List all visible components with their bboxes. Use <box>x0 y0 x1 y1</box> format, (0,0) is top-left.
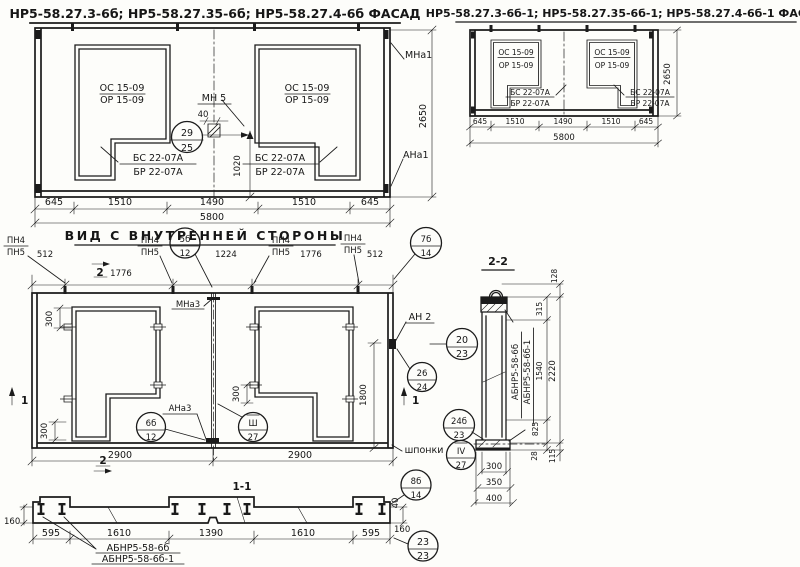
anchor-an2: АН 2 <box>409 312 432 323</box>
dim-1800: 1800 <box>359 384 369 406</box>
niche-mark-br: БР 22-07А <box>511 99 551 108</box>
callout-bottom: 23 <box>417 551 429 562</box>
dim-1510: 1510 <box>292 197 316 208</box>
pn4-label: ПН4 <box>7 236 25 246</box>
callout-top: 5б <box>180 235 191 245</box>
dim-1610: 1610 <box>291 528 315 539</box>
facade-left-panel-outline <box>35 28 390 197</box>
pn5-label: ПН5 <box>141 248 159 258</box>
dim-40: 40 <box>391 498 401 509</box>
section-2-2-body <box>476 297 510 450</box>
callout-bottom: 23 <box>456 349 468 360</box>
section-1-1-outline <box>33 497 390 523</box>
section-marker-1: 1 <box>412 395 419 407</box>
dim-350: 350 <box>486 478 502 488</box>
dim-300: 300 <box>232 386 242 402</box>
embed-size-40: 40 <box>198 110 209 120</box>
callout-bottom: 27 <box>248 433 259 443</box>
dim-2900: 2900 <box>108 450 132 461</box>
section-marker-2: 2 <box>99 455 106 467</box>
window-mark-or: ОР 15-09 <box>100 95 144 106</box>
inner-view-windows <box>72 307 353 441</box>
dim-5800: 5800 <box>200 212 224 223</box>
callout-circles: 29 25 5б 12 7б 14 6б 12 Ш 27 20 23 26 24… <box>137 122 478 563</box>
facade-right-dim-lines <box>467 27 682 147</box>
section-1-1-break-lines <box>108 497 307 523</box>
pn4-label: ПН4 <box>272 236 290 246</box>
dim-160: 160 <box>394 525 410 535</box>
section-2-2-black-marks <box>476 297 510 450</box>
block-label-vertical: АБНР5-58-6б-1 <box>523 340 533 405</box>
dim-1224: 1224 <box>215 250 237 260</box>
section-1-1-ibeam-glyphs <box>38 503 386 515</box>
dim-1020: 1020 <box>233 155 243 177</box>
dim-300: 300 <box>486 462 502 472</box>
niche-mark-bs: БС 22-07А <box>255 153 306 164</box>
dim-1540: 1540 <box>535 361 544 380</box>
facade-right-title: НР5-58.27.3-6б-1; НР5-58.27.35-6б-1; НР5… <box>426 7 800 20</box>
dim-1776: 1776 <box>300 250 322 260</box>
dim-512: 512 <box>37 250 53 260</box>
dim-1490: 1490 <box>200 197 224 208</box>
section-2-2-lifting-loop <box>490 291 503 297</box>
section-marker-1: 1 <box>21 395 28 407</box>
callout-top: 20 <box>456 335 468 346</box>
dim-595: 595 <box>42 528 60 539</box>
niche-mark-br: БР 22-07А <box>255 167 305 178</box>
dim-5800: 5800 <box>553 133 575 143</box>
facade-left-view: НР5-58.27.3-6б; НР5-58.27.35-6б; НР5-58.… <box>9 6 436 227</box>
callout-bottom: 23 <box>454 431 465 441</box>
callout-top: 24б <box>451 417 467 427</box>
callout-bottom: 14 <box>411 491 422 501</box>
callout-bottom: 12 <box>180 249 191 259</box>
window-mark-os: ОС 15-09 <box>285 83 330 94</box>
callout-top: 7б <box>421 235 432 245</box>
callout-top: Ш <box>248 419 257 429</box>
anchor-ana3: АНа3 <box>169 404 192 414</box>
callout-bottom: 24 <box>417 383 428 393</box>
inner-view-title: ВИД С ВНУТРЕННЕЙ СТОРОНЫ <box>65 228 346 243</box>
anchor-ana1: АНа1 <box>403 150 429 161</box>
window-mark-or: ОР 15-09 <box>285 95 329 106</box>
inner-view-anchor-squares <box>60 324 358 402</box>
block-label: АБНР5-58-6б-1 <box>102 554 174 565</box>
section-1-1-title: 1-1 <box>233 481 252 493</box>
pn4-label: ПН4 <box>344 234 362 244</box>
dim-115: 115 <box>548 449 557 464</box>
callout-bottom: 12 <box>146 433 157 443</box>
pn5-label: ПН5 <box>344 246 362 256</box>
dim-400: 400 <box>486 494 502 504</box>
panel-drawing-svg: НР5-58.27.3-6б; НР5-58.27.35-6б; НР5-58.… <box>0 0 800 567</box>
callout-bottom: 25 <box>181 143 193 154</box>
dim-2220: 2220 <box>548 360 558 382</box>
block-label: АБНР5-58-6б <box>107 543 170 554</box>
callout-top: 23 <box>417 537 429 548</box>
dim-2650: 2650 <box>663 63 673 85</box>
callout-top: IV <box>457 447 466 457</box>
blueprint-sheet: НР5-58.27.3-6б; НР5-58.27.35-6б; НР5-58.… <box>0 0 800 567</box>
section-2-2-title: 2-2 <box>488 255 508 268</box>
embed-label-mn5: МН 5 <box>202 93 226 104</box>
inner-view-panel-outline <box>32 293 393 448</box>
dim-645: 645 <box>45 197 63 208</box>
pn5-label: ПН5 <box>272 248 290 258</box>
dim-1490: 1490 <box>553 117 572 126</box>
window-mark-os: ОС 15-09 <box>594 48 630 57</box>
dim-315: 315 <box>535 302 544 317</box>
dim-645: 645 <box>639 117 654 126</box>
dim-1510: 1510 <box>505 117 524 126</box>
facade-left-title: НР5-58.27.3-6б; НР5-58.27.35-6б; НР5-58.… <box>9 6 420 21</box>
dim-512: 512 <box>367 250 383 260</box>
callout-top: 29 <box>181 128 193 139</box>
callout-bottom: 27 <box>456 461 467 471</box>
dim-300: 300 <box>45 311 55 327</box>
callout-top: 8б <box>411 477 422 487</box>
niche-mark-bs: БС 22-07А <box>133 153 184 164</box>
block-label-vertical: АБНР5-58-6б <box>511 344 521 400</box>
niche-mark-br: БР 22-07А <box>631 99 671 108</box>
niche-mark-br: БР 22-07А <box>133 167 183 178</box>
dim-300: 300 <box>40 423 50 439</box>
facade-left-windows <box>75 45 360 180</box>
anchor-mna3: МНа3 <box>176 300 200 310</box>
dim-2900: 2900 <box>288 450 312 461</box>
dim-645: 645 <box>473 117 488 126</box>
dim-2650: 2650 <box>418 104 429 128</box>
pn5-label: ПН5 <box>7 248 25 258</box>
window-mark-os: ОС 15-09 <box>498 48 534 57</box>
section-2-2-view: 2-2 АБНР5-58-6б АБНР5-58-6б-1 128 315 22… <box>471 255 564 507</box>
anchor-mna1: МНа1 <box>405 50 432 61</box>
dim-1510: 1510 <box>601 117 620 126</box>
shponki-label: шпонки <box>405 445 444 456</box>
facade-right-view: НР5-58.27.3-6б-1; НР5-58.27.35-6б-1; НР5… <box>426 7 800 147</box>
section-2-2-hatch <box>479 297 507 447</box>
dim-1776: 1776 <box>110 269 132 279</box>
callout-top: 6б <box>146 419 157 429</box>
pn4-label: ПН4 <box>141 236 159 246</box>
dim-825: 825 <box>531 422 540 437</box>
niche-mark-bs: БС 22-07А <box>630 88 671 97</box>
window-mark-or: ОР 15-09 <box>499 61 534 70</box>
dim-1510: 1510 <box>108 197 132 208</box>
dim-1610: 1610 <box>107 528 131 539</box>
dim-595: 595 <box>362 528 380 539</box>
section-1-1-view: 1-1 160 40 160 595 1610 1390 1610 595 АБ… <box>4 481 410 565</box>
callout-top: 26 <box>417 369 428 379</box>
window-mark-or: ОР 15-09 <box>595 61 630 70</box>
dim-128: 128 <box>550 269 559 284</box>
dim-1390: 1390 <box>199 528 223 539</box>
window-mark-os: ОС 15-09 <box>100 83 145 94</box>
callout-bottom: 14 <box>421 249 432 259</box>
dim-28: 28 <box>530 451 539 461</box>
dim-160: 160 <box>4 517 20 527</box>
dim-645: 645 <box>361 197 379 208</box>
facade-left-leader-lines <box>100 43 404 186</box>
niche-mark-bs: БС 22-07А <box>510 88 551 97</box>
section-marker-2: 2 <box>96 267 103 279</box>
